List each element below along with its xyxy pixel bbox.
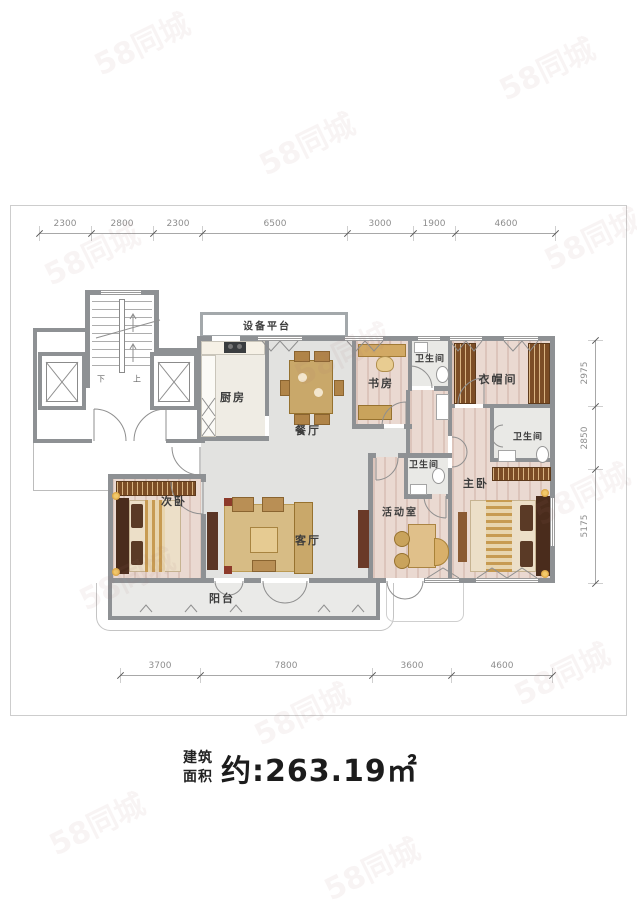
dim-label: 4600 <box>495 219 518 229</box>
stair-break-line <box>96 320 160 338</box>
dim-label: 4600 <box>491 661 514 671</box>
room-label-bath-mid: 卫生间 <box>409 458 439 471</box>
elevator-x <box>158 362 190 402</box>
dim-label: 2800 <box>111 219 134 229</box>
dim-label: 2300 <box>54 219 77 229</box>
dim-label: 5175 <box>580 515 590 538</box>
stair-up-label: 上 <box>133 374 141 385</box>
door-arc <box>452 452 467 467</box>
door-arc <box>94 409 126 441</box>
area-label-line2: 面积 <box>183 768 213 787</box>
building-area: 建筑 面积 约:263.19㎡ <box>183 746 418 790</box>
cabinet-x <box>202 398 215 436</box>
stair-arrow <box>130 314 136 332</box>
casement-mark <box>450 341 482 351</box>
room-label-activity: 活动室 <box>382 504 418 519</box>
door-arc <box>382 402 406 426</box>
entry-door-arc <box>172 447 200 475</box>
stair-down-label: 下 <box>97 374 105 385</box>
elevator-x <box>46 362 78 402</box>
casement-mark <box>347 341 383 351</box>
door-arc <box>134 409 166 441</box>
french-door-arc <box>387 581 423 599</box>
casement-mark <box>262 341 298 351</box>
dim-label: 3700 <box>149 661 172 671</box>
door-arc <box>376 458 398 480</box>
door-arc <box>492 425 503 447</box>
area-label-line1: 建筑 <box>183 749 213 768</box>
room-label-closet: 衣帽间 <box>479 371 518 387</box>
dim-label: 1900 <box>423 219 446 229</box>
dim-label: 2850 <box>580 427 590 450</box>
railing-mark <box>140 605 364 612</box>
casement-mark <box>504 341 538 351</box>
room-label-study: 书房 <box>368 375 394 391</box>
dim-label: 2975 <box>580 362 590 385</box>
room-label-dining: 餐厅 <box>295 422 321 438</box>
dim-label: 3000 <box>369 219 392 229</box>
dim-label: 3600 <box>401 661 424 671</box>
room-label-bath-top: 卫生间 <box>415 352 445 365</box>
casement-mark <box>477 568 537 578</box>
casement-mark <box>427 568 459 578</box>
area-label: 建筑 面积 <box>183 749 213 787</box>
french-door-arc <box>263 581 307 603</box>
room-label-second-bedroom: 次卧 <box>161 493 187 509</box>
door-arc <box>424 496 446 518</box>
room-label-bath-right: 卫生间 <box>513 430 543 443</box>
floorplan-canvas: 58同城 58同城 58同城 58同城 58同城 58同城 58同城 58同城 … <box>0 0 637 900</box>
area-value: 约:263.19㎡ <box>221 746 418 790</box>
door-arc <box>452 437 467 452</box>
dim-label: 7800 <box>275 661 298 671</box>
room-label-master-bedroom: 主卧 <box>463 475 489 491</box>
room-label-balcony: 阳台 <box>209 590 235 606</box>
door-arc <box>410 366 432 388</box>
dim-label: 6500 <box>264 219 287 229</box>
room-label-living: 客厅 <box>295 532 321 548</box>
stair-arrow <box>130 344 136 362</box>
room-label-kitchen: 厨房 <box>220 389 246 405</box>
room-label-equipment-platform: 设备平台 <box>243 318 291 333</box>
dim-label: 2300 <box>167 219 190 229</box>
